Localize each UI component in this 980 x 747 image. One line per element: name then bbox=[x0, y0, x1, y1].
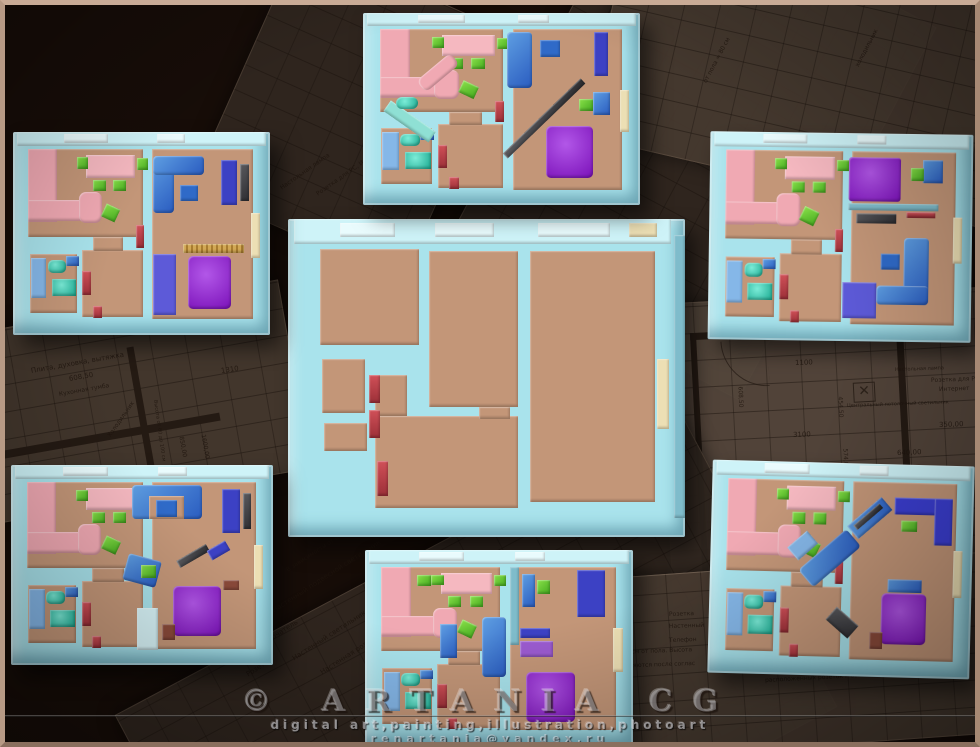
toilet bbox=[46, 591, 64, 604]
tv-bench bbox=[856, 213, 896, 224]
desk-chair bbox=[537, 580, 550, 594]
door-frame-red bbox=[495, 101, 503, 122]
kitchen-hall-opening bbox=[93, 237, 124, 251]
door-frame-red bbox=[789, 310, 798, 323]
nightstand bbox=[223, 580, 239, 590]
desk bbox=[522, 574, 535, 607]
sofa bbox=[482, 617, 506, 678]
watermark-divider-line bbox=[5, 715, 975, 717]
floorplan-variant-top-left bbox=[13, 132, 270, 335]
wall-top-highlight bbox=[17, 132, 266, 146]
bath-sink bbox=[420, 670, 433, 680]
shelf-strip bbox=[520, 628, 549, 638]
desk bbox=[923, 160, 943, 183]
bathtub bbox=[727, 592, 744, 635]
wall-top-highlight bbox=[367, 13, 636, 26]
dining-chair bbox=[417, 575, 430, 587]
floorplans-scene bbox=[5, 5, 975, 742]
bath-sink bbox=[763, 591, 776, 602]
washing-machine bbox=[405, 152, 431, 168]
window-opening bbox=[858, 135, 887, 145]
dining-chair bbox=[812, 181, 825, 193]
balcony-door bbox=[620, 90, 630, 132]
sofa bbox=[153, 156, 204, 174]
side-table bbox=[540, 40, 559, 57]
dining-table bbox=[442, 35, 495, 56]
tv-panel bbox=[243, 493, 251, 529]
door-frame-red bbox=[136, 225, 144, 247]
kitchen-peninsula bbox=[79, 192, 102, 223]
floorplan-center-empty bbox=[288, 219, 685, 537]
window-opening bbox=[859, 465, 888, 476]
bathroom-floor bbox=[324, 423, 368, 452]
corner-sofa bbox=[933, 498, 953, 545]
floorplan-variant-bottom-left bbox=[11, 465, 273, 665]
kitchen-counter-arm bbox=[725, 201, 781, 224]
dining-chair bbox=[792, 512, 805, 524]
hall-floor-left bbox=[375, 375, 407, 416]
door-frame-red bbox=[789, 644, 798, 657]
bath-sink bbox=[66, 256, 79, 266]
dining-chair bbox=[471, 58, 485, 69]
window-opening bbox=[418, 15, 465, 24]
door-frame-red bbox=[369, 410, 380, 439]
bathtub bbox=[726, 260, 742, 302]
bed bbox=[880, 593, 927, 645]
window-opening bbox=[765, 463, 810, 474]
toilet bbox=[401, 673, 420, 686]
balcony-door bbox=[613, 628, 623, 671]
dining-chair bbox=[137, 158, 149, 169]
bed bbox=[173, 586, 220, 636]
window-opening bbox=[157, 134, 185, 143]
balcony-door bbox=[952, 551, 963, 598]
washing-machine bbox=[748, 615, 773, 634]
door-opening bbox=[479, 407, 511, 420]
window-opening bbox=[340, 223, 396, 237]
wardrobe bbox=[221, 160, 236, 205]
window-opening bbox=[64, 134, 108, 143]
bathtub bbox=[382, 132, 399, 170]
hall-floor bbox=[438, 124, 503, 187]
dining-chair bbox=[777, 488, 789, 500]
dining-chair bbox=[431, 575, 443, 586]
dining-chair bbox=[813, 512, 826, 524]
dining-chair bbox=[838, 491, 850, 503]
door-frame-red bbox=[779, 607, 789, 633]
washing-machine bbox=[52, 279, 76, 296]
door-frame-red bbox=[449, 177, 459, 189]
dining-chair bbox=[92, 512, 105, 523]
dining-chair bbox=[113, 180, 126, 191]
wall-top-highlight bbox=[369, 550, 629, 564]
door-frame-red bbox=[93, 306, 102, 318]
shelf-wood bbox=[183, 244, 245, 253]
door-frame-red bbox=[82, 271, 91, 295]
door-frame-red bbox=[82, 602, 91, 626]
dining-chair bbox=[791, 181, 804, 193]
dining-table bbox=[785, 156, 835, 180]
toilet bbox=[744, 263, 763, 277]
desk-chair bbox=[911, 168, 924, 181]
toilet bbox=[744, 595, 763, 609]
floorplan-variant-bottom-right bbox=[707, 460, 974, 680]
door-frame-red bbox=[448, 718, 457, 730]
washing-machine bbox=[50, 610, 75, 627]
door-frame-red bbox=[437, 684, 446, 708]
room-floor-left bbox=[320, 249, 419, 344]
desk bbox=[593, 92, 610, 115]
kitchen-counter-arm bbox=[28, 200, 82, 221]
balcony-door bbox=[254, 545, 263, 589]
room-divider-wall bbox=[510, 567, 519, 645]
door-frame-red bbox=[835, 229, 843, 252]
bed bbox=[546, 126, 593, 178]
hall-floor bbox=[82, 250, 142, 317]
bathroom-floor bbox=[322, 359, 366, 413]
window-opening bbox=[435, 223, 495, 237]
dining-table bbox=[86, 155, 135, 177]
kitchen-counter-arm bbox=[726, 531, 782, 555]
door-frame-red bbox=[438, 145, 448, 168]
desk-chair bbox=[141, 565, 157, 578]
coffee-table bbox=[180, 185, 198, 201]
side-table bbox=[881, 253, 900, 270]
wardrobe bbox=[594, 32, 608, 76]
balcony-door bbox=[952, 218, 962, 264]
dining-chair bbox=[448, 596, 461, 607]
toilet bbox=[48, 260, 66, 273]
window-opening bbox=[63, 467, 108, 476]
balcony-door bbox=[657, 359, 669, 429]
dining-table bbox=[786, 486, 836, 511]
kitchen-peninsula bbox=[78, 524, 102, 555]
kitchen-hall-opening bbox=[92, 568, 123, 582]
hall-floor bbox=[82, 581, 144, 647]
washing-machine bbox=[748, 283, 773, 301]
window-opening bbox=[515, 552, 544, 561]
bed bbox=[188, 256, 232, 309]
dining-chair bbox=[837, 160, 849, 172]
tv-panel bbox=[240, 164, 249, 201]
dining-chair bbox=[76, 490, 88, 501]
desk-chair bbox=[901, 521, 917, 532]
window-opening bbox=[538, 223, 609, 237]
sofa-small bbox=[842, 282, 877, 319]
dining-chair bbox=[432, 37, 444, 48]
nightstand bbox=[869, 632, 883, 649]
kitchen-peninsula bbox=[776, 193, 800, 226]
dining-table bbox=[86, 488, 136, 510]
room-floor-middle bbox=[429, 251, 518, 407]
window-opening bbox=[518, 15, 548, 24]
artwork-canvas: ✕ © ARTANIA CG digital art,painting,illu… bbox=[0, 0, 980, 747]
sofa bbox=[876, 285, 928, 304]
toilet-oval bbox=[396, 97, 418, 109]
dresser bbox=[520, 641, 552, 657]
window-opening bbox=[629, 223, 657, 237]
dining-chair bbox=[775, 158, 787, 170]
toilet bbox=[400, 134, 419, 146]
kitchen-hall-opening bbox=[790, 239, 822, 254]
wall-top-highlight bbox=[15, 465, 269, 479]
shelf-red bbox=[907, 212, 936, 219]
kitchen-hall-opening bbox=[449, 112, 482, 125]
dining-table bbox=[441, 573, 492, 595]
coffee-table bbox=[156, 500, 177, 517]
wardrobe bbox=[222, 489, 240, 533]
dining-chair bbox=[470, 596, 483, 607]
balcony-door bbox=[251, 213, 260, 258]
dining-chair bbox=[494, 575, 506, 586]
bed bbox=[849, 157, 901, 201]
bathtub bbox=[29, 589, 45, 629]
bathtub bbox=[384, 672, 400, 711]
room-divider-wall bbox=[849, 203, 938, 212]
bath-sink bbox=[65, 587, 78, 597]
floorplan-variant-top-center bbox=[363, 13, 640, 205]
door-frame-red bbox=[92, 636, 101, 648]
wardrobe-corner bbox=[577, 570, 605, 617]
floorplan-variant-top-right bbox=[708, 131, 974, 343]
nightstand bbox=[162, 624, 175, 640]
window-opening bbox=[158, 467, 187, 476]
window-opening bbox=[419, 552, 465, 561]
kitchen-counter-arm bbox=[381, 616, 437, 637]
desk-chair bbox=[579, 99, 593, 111]
dining-chair bbox=[77, 157, 89, 168]
kitchen-counter-arm bbox=[27, 532, 82, 553]
sofa bbox=[507, 32, 532, 88]
hall-floor bbox=[375, 416, 518, 508]
bookshelf bbox=[440, 624, 457, 657]
bathtub bbox=[31, 258, 46, 299]
washing-machine bbox=[405, 692, 430, 709]
window-opening bbox=[763, 134, 808, 144]
room-floor-right bbox=[530, 251, 655, 502]
door-frame-red bbox=[377, 461, 388, 496]
bath-sink bbox=[762, 259, 775, 270]
bed-head bbox=[888, 579, 922, 593]
door-frame-red bbox=[369, 375, 380, 404]
slab-edge bbox=[674, 235, 685, 518]
ladder bbox=[137, 608, 158, 650]
dining-chair bbox=[93, 180, 106, 191]
dining-chair bbox=[113, 512, 126, 523]
door-frame-red bbox=[779, 275, 789, 300]
closet bbox=[153, 254, 176, 315]
